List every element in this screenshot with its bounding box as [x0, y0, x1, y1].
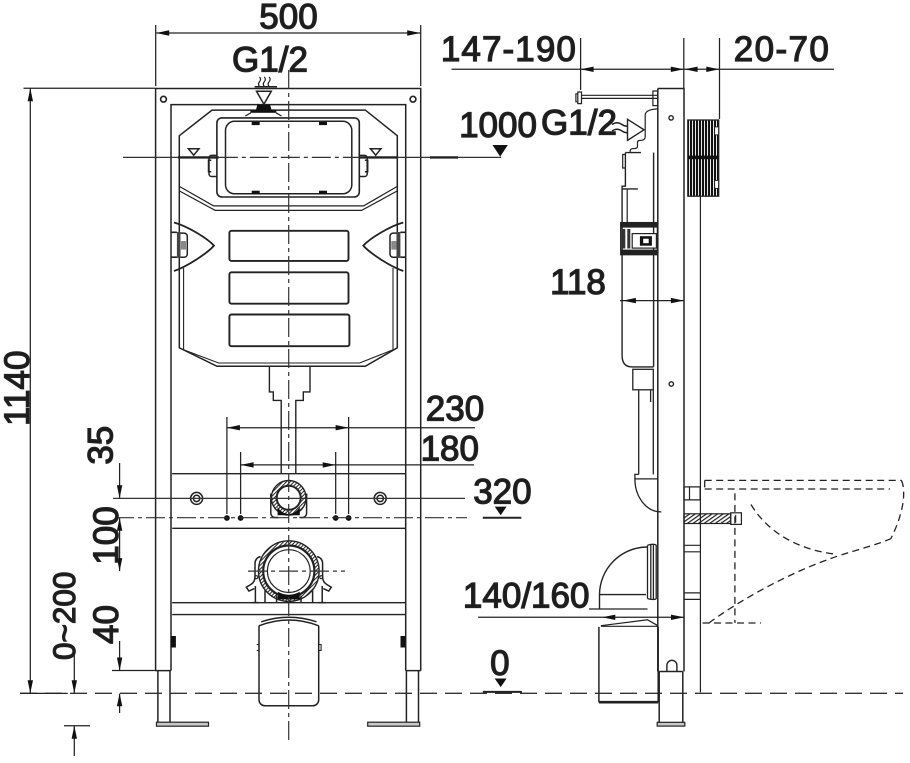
svg-text:140/160: 140/160	[463, 577, 590, 616]
svg-text:0~200: 0~200	[46, 572, 82, 660]
svg-text:230: 230	[426, 389, 484, 428]
svg-text:320: 320	[473, 472, 531, 511]
svg-text:100: 100	[87, 506, 126, 564]
svg-text:180: 180	[421, 429, 479, 468]
svg-text:147-190: 147-190	[441, 30, 577, 69]
svg-text:500: 500	[259, 0, 317, 37]
svg-text:20-70: 20-70	[734, 30, 831, 69]
svg-text:G1/2: G1/2	[232, 41, 308, 80]
svg-text:35: 35	[81, 426, 120, 465]
svg-text:0: 0	[490, 644, 509, 683]
svg-text:1000: 1000	[459, 106, 537, 145]
svg-text:118: 118	[550, 263, 606, 302]
svg-text:1140: 1140	[0, 351, 37, 426]
svg-text:G1/2: G1/2	[541, 104, 617, 143]
svg-text:40: 40	[87, 605, 126, 644]
